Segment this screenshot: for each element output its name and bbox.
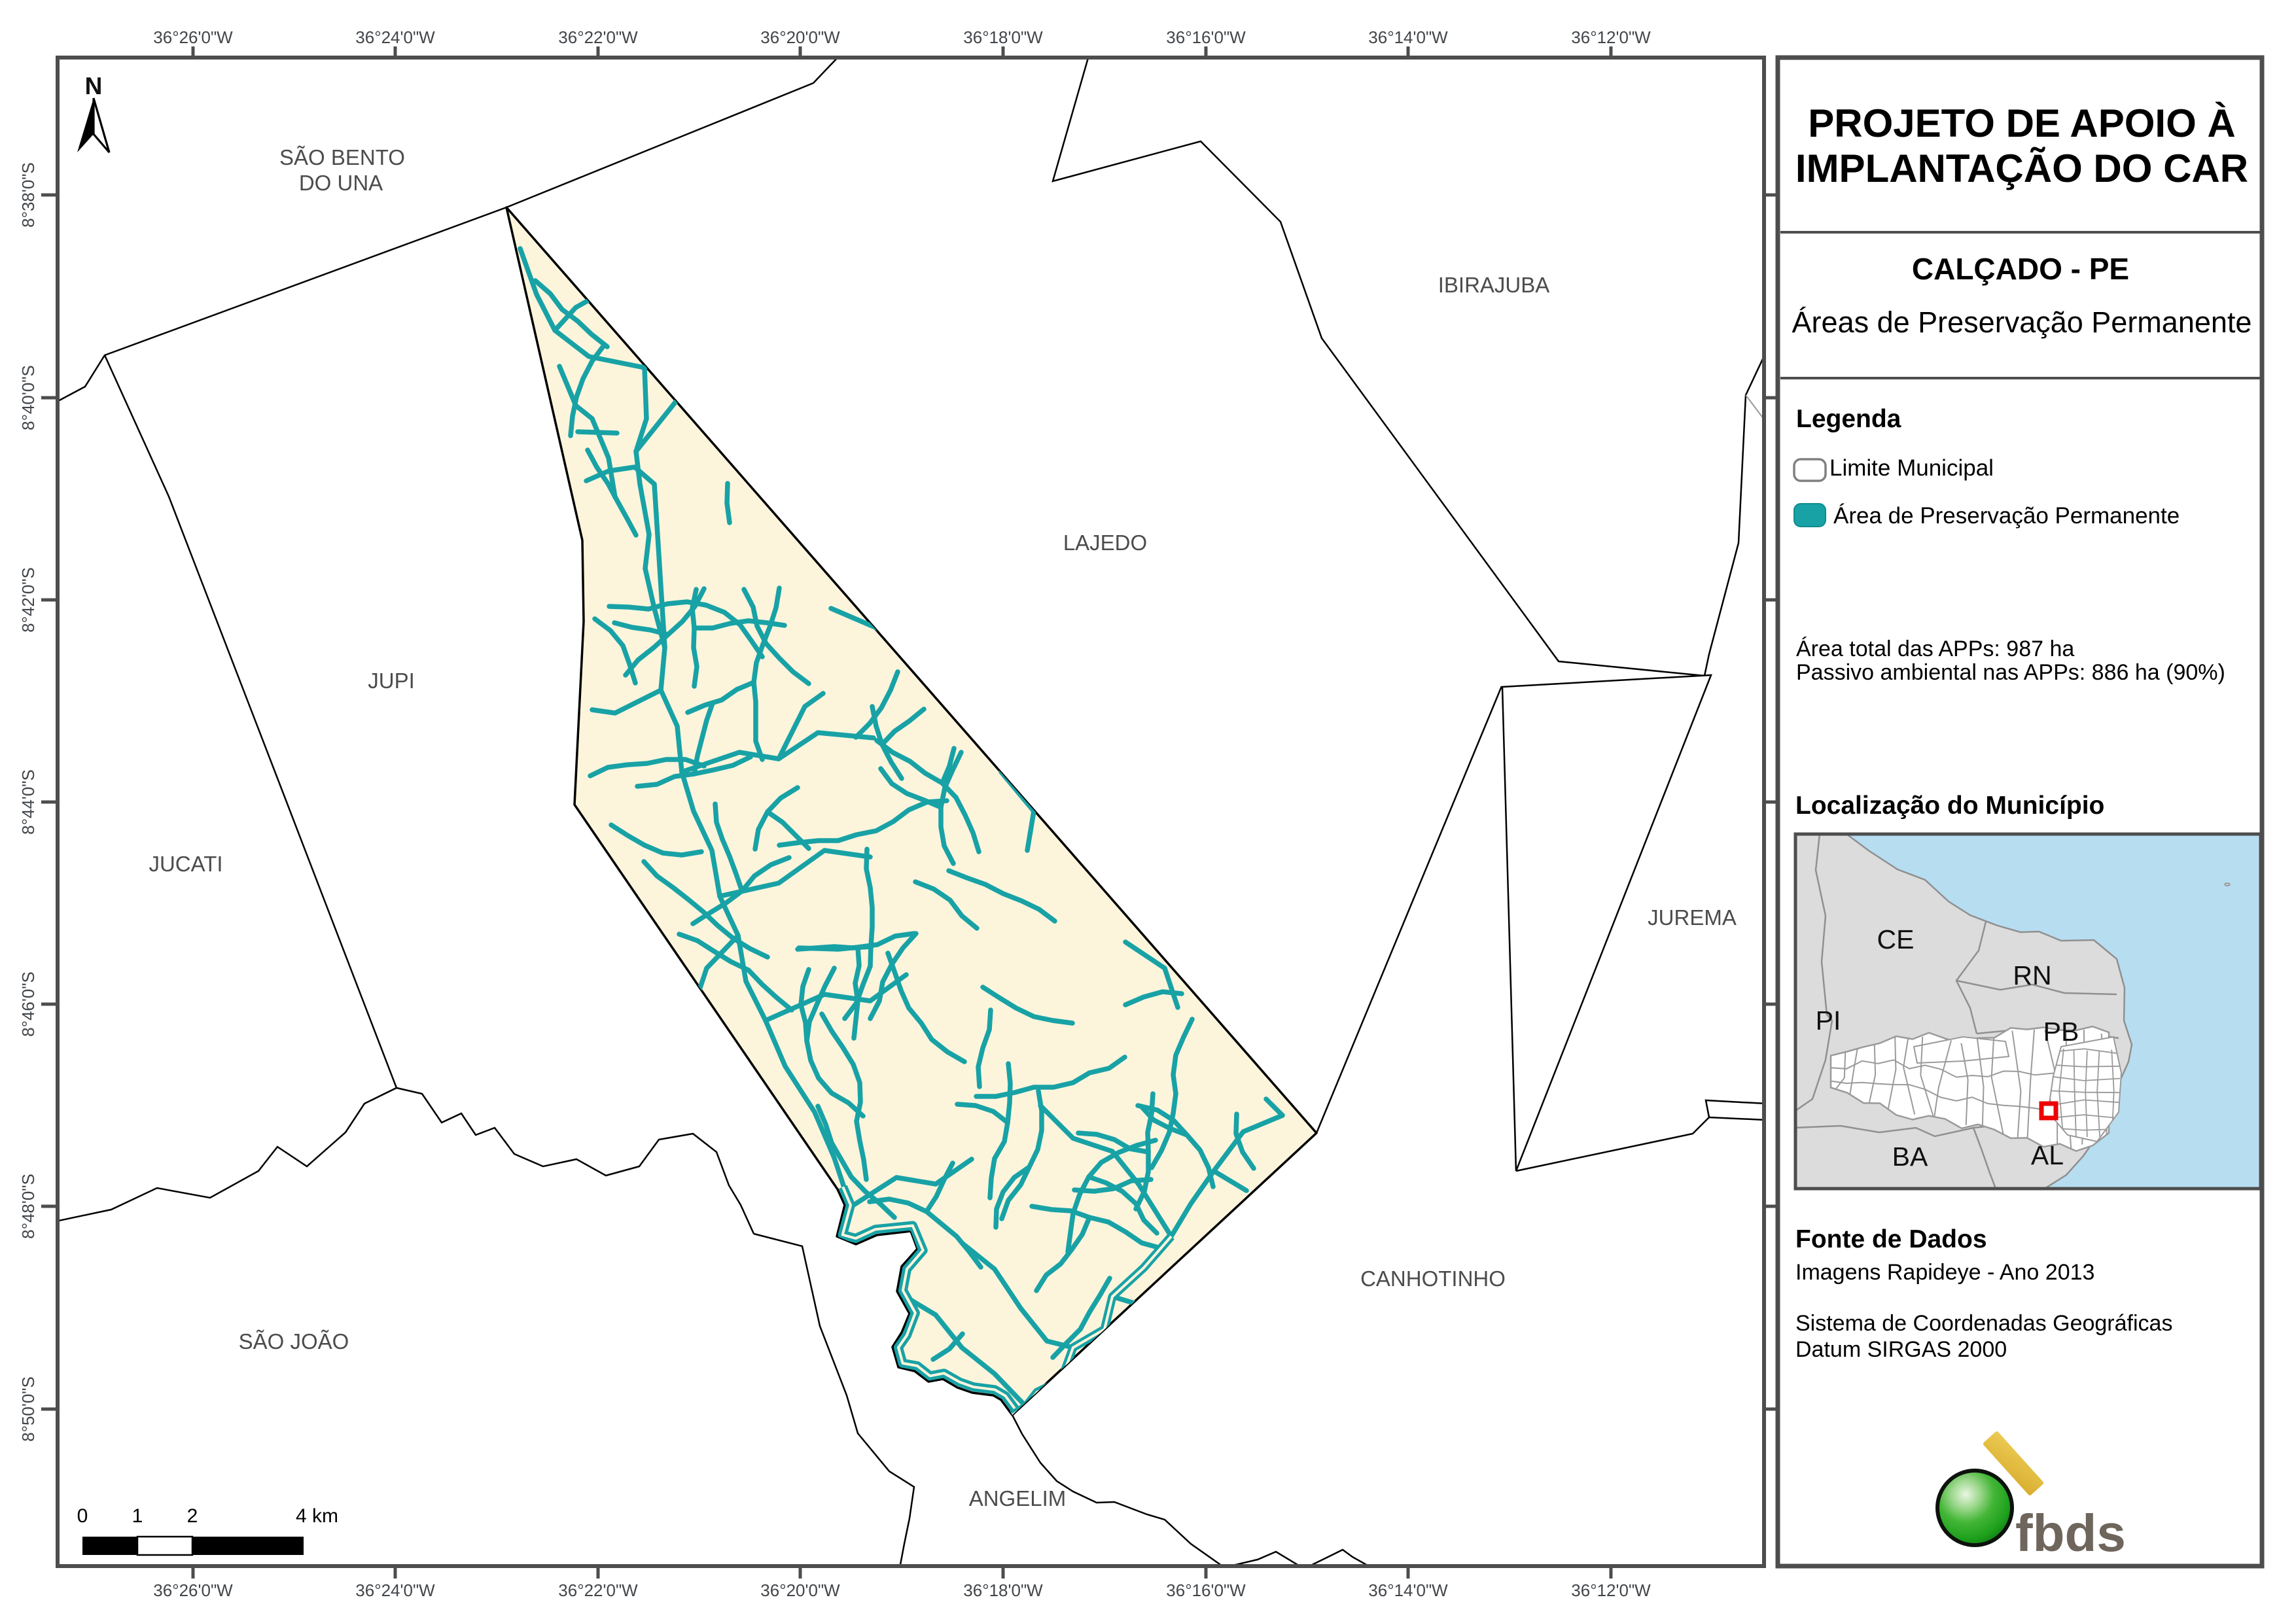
svg-text:IMPLANTAÇÃO DO CAR: IMPLANTAÇÃO DO CAR [1795,147,2248,190]
svg-text:Área de Preservação Permanente: Área de Preservação Permanente [1833,503,2180,529]
svg-text:IBIRAJUBA: IBIRAJUBA [1438,273,1550,297]
svg-text:8°48'0"S: 8°48'0"S [18,1174,38,1239]
svg-text:JUPI: JUPI [368,669,415,693]
svg-text:SÃO JOÃO: SÃO JOÃO [239,1329,349,1353]
svg-text:LAJEDO: LAJEDO [1063,531,1147,555]
svg-text:36°12'0"W: 36°12'0"W [1571,1580,1651,1600]
svg-text:N: N [85,73,103,99]
svg-text:8°38'0"S: 8°38'0"S [18,162,38,228]
svg-text:Legenda: Legenda [1796,405,1901,433]
svg-text:36°14'0"W: 36°14'0"W [1368,27,1448,47]
svg-text:36°26'0"W: 36°26'0"W [153,1580,233,1600]
svg-text:Imagens Rapideye - Ano 2013: Imagens Rapideye - Ano 2013 [1795,1260,2094,1285]
svg-text:PB: PB [2043,1017,2079,1047]
svg-text:CALÇADO - PE: CALÇADO - PE [1912,252,2129,286]
svg-text:36°18'0"W: 36°18'0"W [963,27,1043,47]
svg-text:DO UNA: DO UNA [299,171,383,195]
svg-text:36°18'0"W: 36°18'0"W [963,1580,1043,1600]
svg-text:ANGELIM: ANGELIM [969,1486,1067,1510]
svg-text:1: 1 [132,1505,143,1527]
svg-text:36°26'0"W: 36°26'0"W [153,27,233,47]
svg-text:8°50'0"S: 8°50'0"S [18,1376,38,1442]
svg-text:BA: BA [1892,1142,1928,1172]
svg-text:36°22'0"W: 36°22'0"W [558,1580,638,1600]
svg-text:Área total das APPs: 987 ha: Área total das APPs: 987 ha [1796,637,2074,661]
svg-text:36°14'0"W: 36°14'0"W [1368,1580,1448,1600]
svg-text:36°16'0"W: 36°16'0"W [1166,1580,1246,1600]
svg-text:Sistema de Coordenadas Geográf: Sistema de Coordenadas Geográficas [1795,1311,2172,1336]
svg-text:36°24'0"W: 36°24'0"W [355,27,435,47]
svg-text:Fonte de Dados: Fonte de Dados [1795,1225,1987,1253]
svg-text:36°16'0"W: 36°16'0"W [1166,27,1246,47]
svg-text:PI: PI [1816,1005,1841,1036]
svg-text:36°20'0"W: 36°20'0"W [760,1580,840,1600]
svg-text:JUCATI: JUCATI [149,852,222,876]
svg-text:SÃO BENTO: SÃO BENTO [279,145,405,169]
svg-text:PROJETO DE APOIO À: PROJETO DE APOIO À [1808,101,2235,145]
svg-text:Datum SIRGAS 2000: Datum SIRGAS 2000 [1795,1337,2007,1362]
svg-text:36°20'0"W: 36°20'0"W [760,27,840,47]
svg-text:4 km: 4 km [296,1505,338,1527]
svg-text:Limite Municipal: Limite Municipal [1829,455,1994,481]
svg-text:36°12'0"W: 36°12'0"W [1571,27,1651,47]
svg-text:AL: AL [2031,1140,2064,1170]
svg-text:Passivo ambiental nas APPs: 88: Passivo ambiental nas APPs: 886 ha (90%) [1796,660,2225,685]
svg-text:0: 0 [77,1505,88,1527]
svg-text:8°46'0"S: 8°46'0"S [18,971,38,1037]
svg-text:36°24'0"W: 36°24'0"W [355,1580,435,1600]
svg-text:fbds: fbds [2015,1504,2126,1562]
svg-text:8°40'0"S: 8°40'0"S [18,365,38,430]
svg-text:8°42'0"S: 8°42'0"S [18,567,38,633]
svg-text:Localização do Município: Localização do Município [1795,792,2104,820]
svg-text:Áreas de Preservação Permanent: Áreas de Preservação Permanente [1792,305,2252,339]
svg-text:2: 2 [187,1505,198,1527]
svg-text:36°22'0"W: 36°22'0"W [558,27,638,47]
svg-text:CE: CE [1877,924,1915,954]
svg-text:CANHOTINHO: CANHOTINHO [1360,1266,1506,1291]
svg-text:8°44'0"S: 8°44'0"S [18,769,38,835]
svg-text:RN: RN [2013,960,2051,990]
svg-text:JUREMA: JUREMA [1648,905,1737,930]
